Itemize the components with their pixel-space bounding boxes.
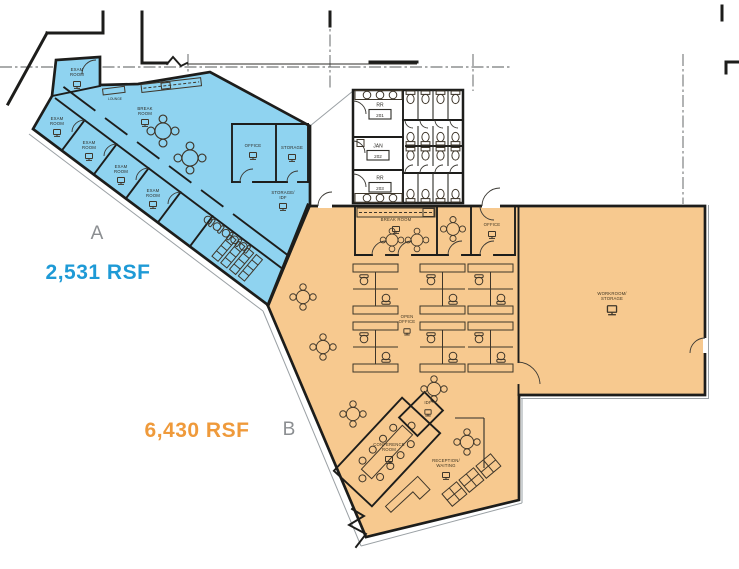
room-label-idf: IDF [424, 400, 432, 405]
svg-text:203: 203 [376, 186, 384, 191]
room-label-rr-201: RR [376, 103, 384, 109]
svg-text:ROOM: ROOM [138, 111, 152, 116]
cubicle-pod [420, 264, 465, 314]
restroom-core: RR 201 JAN 202 RR 203 [353, 90, 463, 203]
svg-text:WAITING: WAITING [436, 463, 456, 468]
svg-text:ROOM: ROOM [114, 169, 128, 174]
room-label-jan-202: JAN [373, 144, 383, 150]
svg-text:IDF: IDF [279, 195, 287, 200]
wall-break-symbol [167, 57, 187, 66]
svg-text:201: 201 [376, 113, 384, 118]
svg-text:ROOM: ROOM [70, 72, 84, 77]
cubicle-pod [468, 322, 513, 372]
room-label-storage-a: STORAGE [281, 145, 303, 150]
room-label-office-a: OFFICE [245, 143, 262, 148]
svg-text:ROOM: ROOM [382, 447, 396, 452]
cubicle-pod [353, 264, 398, 314]
svg-text:ROOM: ROOM [146, 193, 160, 198]
room-label-break-room-b: BREAK ROOM [381, 217, 412, 222]
suite-a-letter: A [91, 223, 104, 244]
room-label-rr-203: RR [376, 176, 384, 182]
suite-b-letter: B [283, 419, 296, 440]
room-label-lounge: LOUNGE [108, 97, 123, 101]
suite-b-rsf-label: 6,430 RSF [145, 419, 250, 442]
suite-a-rsf-label: 2,531 RSF [46, 261, 151, 284]
floor-plan-svg: EXAM ROOM EXAM ROOM EXAM ROOM EXAM ROOM … [0, 0, 739, 569]
cubicle-pod [353, 322, 398, 372]
svg-text:STORAGE: STORAGE [601, 296, 623, 301]
svg-text:ROOM: ROOM [82, 145, 96, 150]
floor-plan: EXAM ROOM EXAM ROOM EXAM ROOM EXAM ROOM … [0, 0, 739, 569]
svg-text:202: 202 [374, 154, 382, 159]
svg-text:ROOM: ROOM [50, 121, 64, 126]
svg-text:OFFICE: OFFICE [399, 319, 416, 324]
room-label-office-b: OFFICE [484, 222, 501, 227]
cubicle-pod [468, 264, 513, 314]
cubicle-pod [420, 322, 465, 372]
